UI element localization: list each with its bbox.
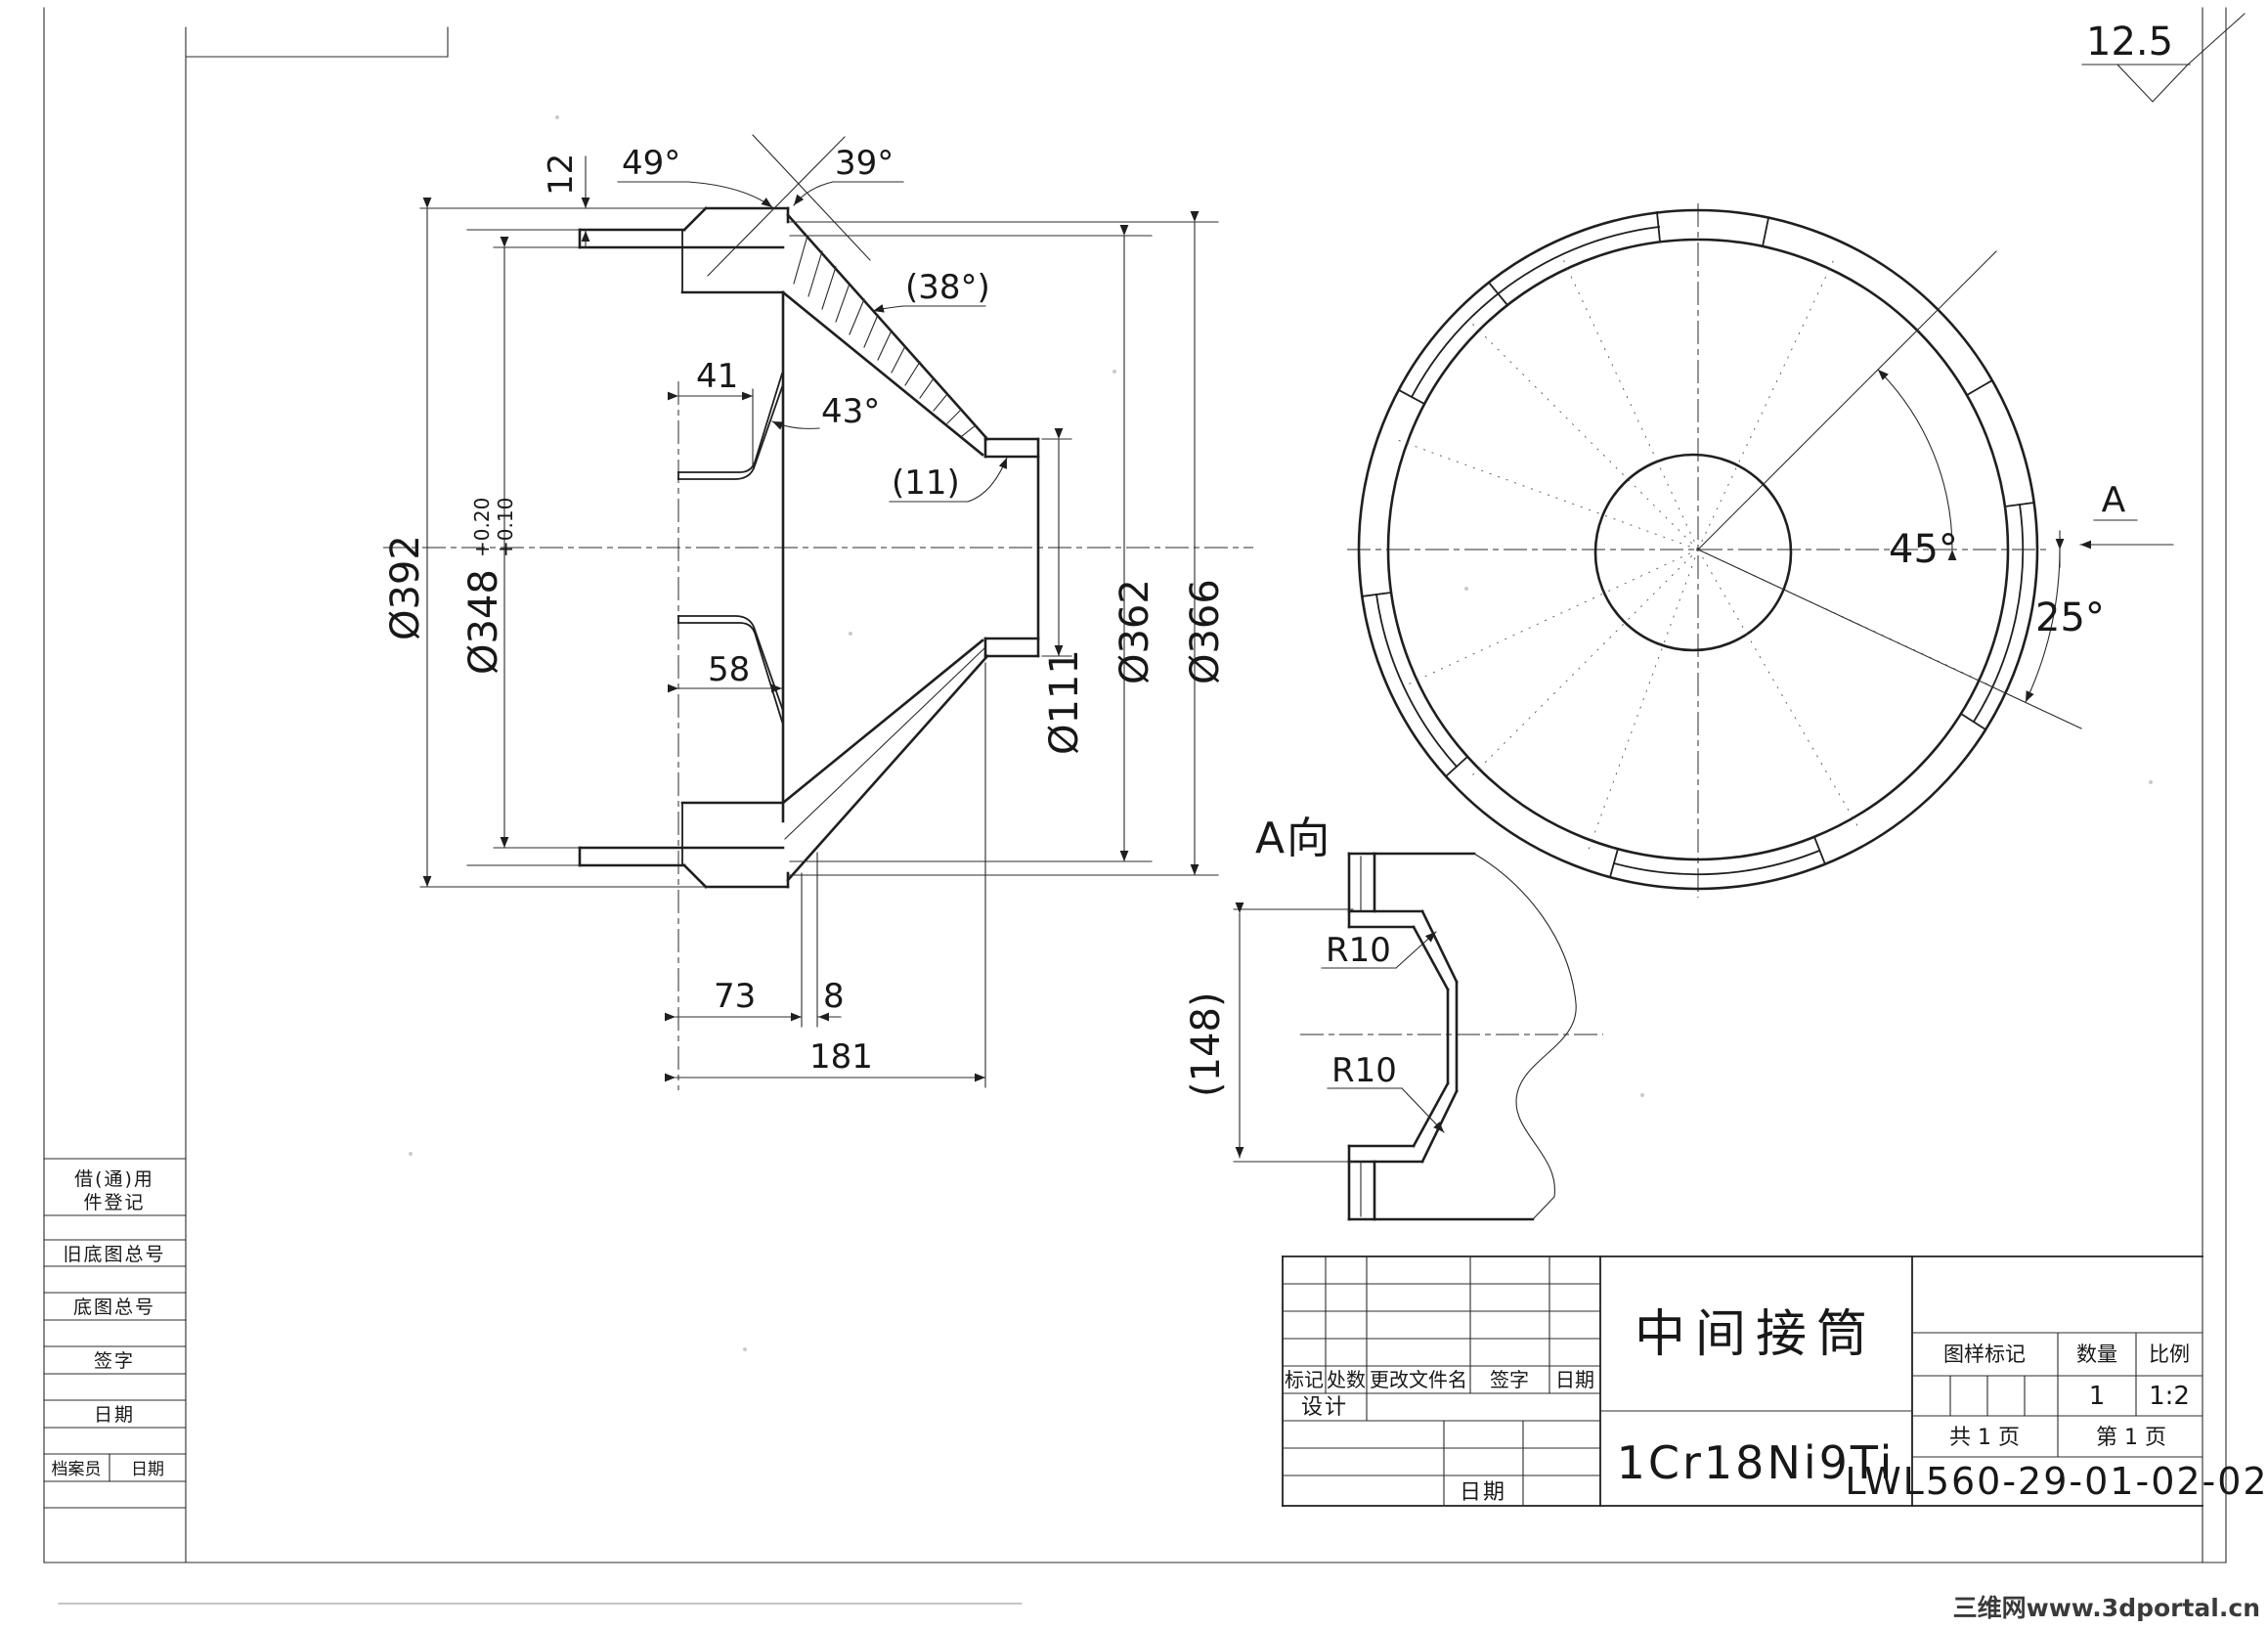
surface-roughness-icon: 12.5	[2082, 14, 2245, 102]
date-label: 日期	[94, 1404, 135, 1426]
dim-58-label: 58	[708, 650, 750, 689]
title-block: 标记 处数 更改文件名 签字 日期 设计 日期 中间接筒 1Cr18Ni9Ti …	[1283, 1256, 2268, 1506]
watermark-text: 三维网www.3dportal.cn	[1953, 1594, 2260, 1622]
main-section-view: 49° 39° (38°) 43° (11) 41 58 73 8 181 12…	[383, 135, 1253, 1090]
stamp-label: 图样标记	[1943, 1343, 2026, 1366]
dia-362-label: Ø362	[1112, 579, 1157, 684]
view-a-letter: A	[2102, 480, 2126, 520]
old-master-number-label: 旧底图总号	[63, 1244, 165, 1265]
view-a-arrow-icon: A	[2080, 480, 2173, 545]
signature-label: 签字	[94, 1350, 135, 1372]
front-circular-view: 45° 25° A	[1347, 203, 2173, 898]
dim-8-label: 8	[823, 977, 845, 1016]
dim-73-label: 73	[714, 977, 756, 1016]
scan-specks	[409, 115, 2153, 1351]
angle-49-label: 49°	[622, 144, 680, 183]
dim-148-label: (148)	[1184, 991, 1229, 1097]
sheets-total: 共 1 页	[1949, 1426, 2020, 1450]
drawing-sheet: 12.5 借(通)用 件登记 旧底图总号 底图总号 签字 日期 档案员 日期	[0, 0, 2268, 1629]
quantity-label: 数量	[2076, 1343, 2117, 1366]
scale-value: 1:2	[2149, 1382, 2190, 1411]
design-label: 设计	[1301, 1395, 1348, 1420]
radius-r10-top-label: R10	[1326, 931, 1391, 970]
borrowed-parts-label-2: 件登记	[83, 1192, 145, 1213]
roughness-value: 12.5	[2086, 20, 2173, 65]
wall-11-label: (11)	[892, 463, 960, 503]
radius-r10-bottom-label: R10	[1331, 1051, 1397, 1090]
archivist-label: 档案员	[52, 1460, 102, 1479]
quantity-value: 1	[2089, 1382, 2106, 1411]
detail-view-a: A向 (148) R10 R10	[1184, 814, 1603, 1219]
sheet-number: 第 1 页	[2096, 1426, 2166, 1450]
rev-header-signature: 签字	[1490, 1368, 1529, 1391]
rev-header-docname: 更改文件名	[1370, 1368, 1467, 1391]
rev-header-date: 日期	[1555, 1368, 1594, 1391]
dia-348-tol-lower: +0.10	[494, 498, 517, 557]
sheet-frame	[44, 8, 2226, 1604]
master-number-label: 底图总号	[73, 1297, 155, 1318]
rev-header-mark: 标记	[1285, 1368, 1324, 1391]
dim-181-label: 181	[809, 1037, 873, 1077]
borrowed-parts-label-1: 借(通)用	[74, 1168, 154, 1190]
dim-12-label: 12	[542, 154, 581, 196]
angle-25-label: 25°	[2035, 595, 2105, 640]
break-line	[1474, 854, 1576, 1219]
archive-date-label: 日期	[131, 1460, 164, 1479]
detail-view-label: A向	[1255, 814, 1331, 863]
part-name: 中间接筒	[1635, 1305, 1877, 1364]
scale-label: 比例	[2149, 1343, 2190, 1366]
angle-39-label: 39°	[835, 144, 894, 183]
dim-41-label: 41	[696, 357, 738, 396]
left-registration-panel: 借(通)用 件登记 旧底图总号 底图总号 签字 日期 档案员 日期	[44, 1159, 186, 1508]
dia-366-label: Ø366	[1183, 579, 1228, 684]
angle-38-label: (38°)	[905, 268, 990, 307]
dia-392-label: Ø392	[383, 535, 428, 640]
center-bore-circle	[1595, 455, 1791, 650]
rev-header-count: 处数	[1327, 1368, 1366, 1391]
angle-45-label: 45°	[1889, 527, 1958, 572]
dia-348-label: Ø348	[461, 569, 506, 675]
angle-43-label: 43°	[821, 392, 880, 431]
dia-111-label: Ø111	[1042, 649, 1087, 755]
titleblock-date-label: 日期	[1460, 1480, 1506, 1505]
drawing-number: LWL560-29-01-02-02	[1845, 1460, 2268, 1503]
engineering-drawing-canvas: 12.5 借(通)用 件登记 旧底图总号 底图总号 签字 日期 档案员 日期	[0, 0, 2268, 1629]
dia-348-tol-upper: +0.20	[470, 498, 494, 557]
